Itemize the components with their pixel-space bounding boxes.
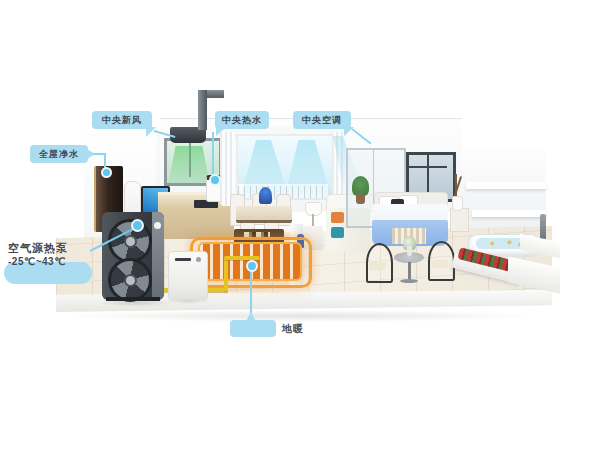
heat-pump-label-block: 空气源热泵 -25℃~43℃ (8, 241, 118, 267)
hydraulic-module-logo (196, 257, 201, 262)
fan-hub (124, 274, 137, 287)
callout-water-purification: 全屋净水 (30, 145, 88, 163)
ground-shadow (66, 310, 536, 322)
decor-vase (452, 196, 463, 211)
leader-dot (246, 260, 258, 272)
terrace-table-base (400, 279, 418, 283)
table-lamp-stem (312, 214, 314, 226)
chair-cushion (369, 262, 386, 270)
plant-pot (356, 194, 365, 204)
water-pipe (224, 258, 228, 292)
heat-pump-label: 空气源热泵 (8, 241, 118, 256)
heat-pump-temp-range: -25℃~43℃ (8, 256, 118, 267)
right-wing-ledge (472, 210, 546, 217)
table-centerpiece (259, 187, 272, 204)
sofa-cushion-teal (331, 227, 344, 238)
terrace-table-leg (408, 262, 411, 280)
water-pipe (224, 256, 260, 260)
nightstand (450, 208, 469, 232)
bedroom-window-mullion (427, 155, 429, 193)
water-purification-label: 全屋净水 (39, 148, 79, 161)
heat-pump-feet (106, 297, 160, 301)
fresh-air-label: 中央新风 (102, 114, 142, 127)
leader-dot (101, 167, 112, 178)
hydraulic-module-display (175, 258, 191, 261)
dining-table (236, 206, 292, 223)
floor-heating-label: 地暖 (282, 322, 304, 336)
leader-dot (209, 174, 221, 186)
house-cutaway-illustration: 中央新风 中央热水 中央空调 全屋净水 空气源热泵 -25℃~43℃ 地暖 (0, 0, 600, 450)
outdoor-faucet (540, 214, 546, 240)
callout-floor-heating (230, 320, 276, 337)
flower-vase (407, 246, 412, 256)
hot-water-label: 中央热水 (222, 114, 262, 127)
air-conditioning-label: 中央空调 (302, 114, 342, 127)
leader-line (212, 132, 214, 176)
callout-tail (216, 128, 225, 136)
callout-hot-water: 中央热水 (215, 111, 269, 129)
potted-plant (352, 176, 369, 196)
exhaust-duct (198, 90, 207, 130)
sofa-cushion-orange (331, 212, 344, 223)
bedroom-window-mullion (409, 166, 447, 168)
right-wing-ledge (466, 182, 546, 189)
chair-cushion (431, 260, 448, 268)
fan-hub (124, 235, 137, 248)
callout-fresh-air: 中央新风 (92, 111, 152, 129)
heat-pump-logo-badge (154, 222, 161, 229)
leader-dot (131, 219, 144, 232)
callout-air-conditioning: 中央空调 (293, 111, 351, 129)
